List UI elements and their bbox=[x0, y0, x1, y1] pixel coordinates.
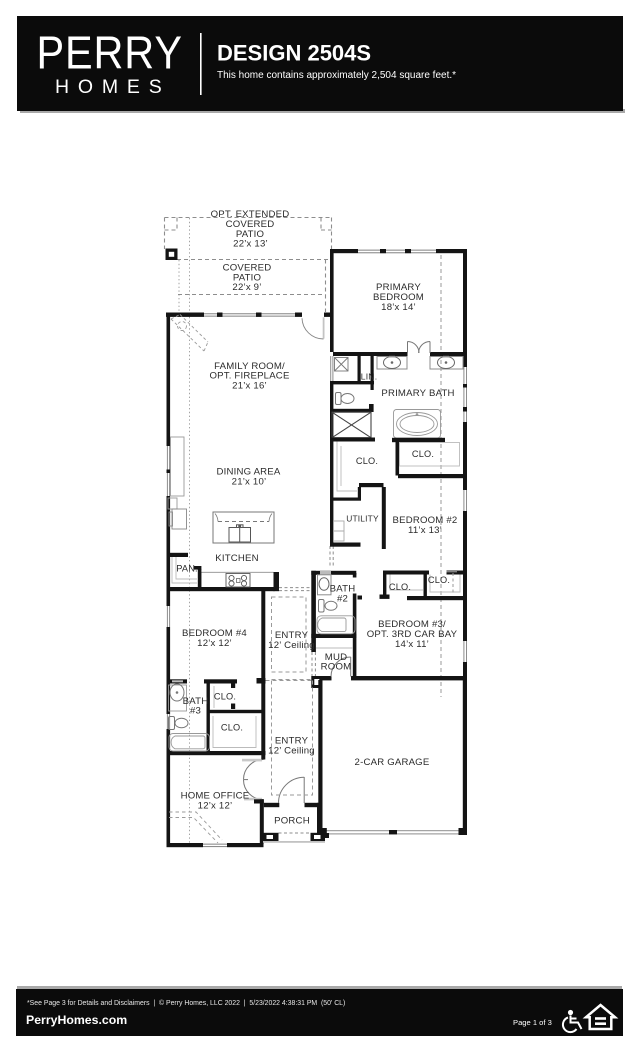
svg-text:22’x 9’: 22’x 9’ bbox=[232, 282, 261, 293]
svg-text:12’ Ceiling: 12’ Ceiling bbox=[268, 640, 315, 651]
svg-text:12’x 12’: 12’x 12’ bbox=[197, 638, 232, 649]
svg-text:This home contains approximate: This home contains approximately 2,504 s… bbox=[217, 70, 456, 81]
svg-text:CLO.: CLO. bbox=[221, 723, 243, 733]
svg-text:LIN.: LIN. bbox=[361, 372, 378, 382]
svg-text:UTILITY: UTILITY bbox=[346, 514, 379, 524]
svg-text:PerryHomes.com: PerryHomes.com bbox=[26, 1013, 127, 1027]
svg-text:21’x 10’: 21’x 10’ bbox=[232, 477, 267, 488]
svg-text:CLO.: CLO. bbox=[428, 575, 450, 585]
svg-text:DESIGN 2504S: DESIGN 2504S bbox=[217, 41, 371, 66]
svg-text:11’x 13’: 11’x 13’ bbox=[408, 525, 442, 536]
svg-text:PAN.: PAN. bbox=[176, 564, 198, 574]
svg-text:CLO.: CLO. bbox=[214, 692, 236, 702]
svg-text:CLO.: CLO. bbox=[356, 456, 378, 466]
svg-text:*See Page 3 for Details and Di: *See Page 3 for Details and Disclaimers … bbox=[27, 999, 345, 1007]
svg-text:HOMES: HOMES bbox=[55, 76, 171, 98]
svg-text:22’x 13’: 22’x 13’ bbox=[233, 239, 268, 250]
svg-text:PRIMARY BATH: PRIMARY BATH bbox=[381, 388, 454, 399]
svg-text:KITCHEN: KITCHEN bbox=[215, 553, 259, 564]
svg-text:18’x 14’: 18’x 14’ bbox=[381, 302, 416, 313]
svg-text:CLO.: CLO. bbox=[412, 449, 434, 459]
svg-text:CLO.: CLO. bbox=[389, 582, 411, 592]
svg-text:14’x 11’: 14’x 11’ bbox=[395, 639, 429, 650]
svg-text:12’ Ceiling: 12’ Ceiling bbox=[268, 746, 315, 757]
svg-text:Page 1 of 3: Page 1 of 3 bbox=[513, 1018, 552, 1027]
svg-text:PERRY: PERRY bbox=[37, 28, 183, 80]
svg-text:#3: #3 bbox=[190, 706, 201, 717]
svg-text:#2: #2 bbox=[337, 594, 348, 605]
svg-text:ROOM: ROOM bbox=[321, 662, 352, 673]
svg-text:2-CAR GARAGE: 2-CAR GARAGE bbox=[355, 757, 430, 768]
svg-text:PORCH: PORCH bbox=[274, 816, 310, 827]
svg-text:12’x 12’: 12’x 12’ bbox=[198, 801, 233, 812]
svg-text:21’x 16’: 21’x 16’ bbox=[232, 381, 267, 392]
